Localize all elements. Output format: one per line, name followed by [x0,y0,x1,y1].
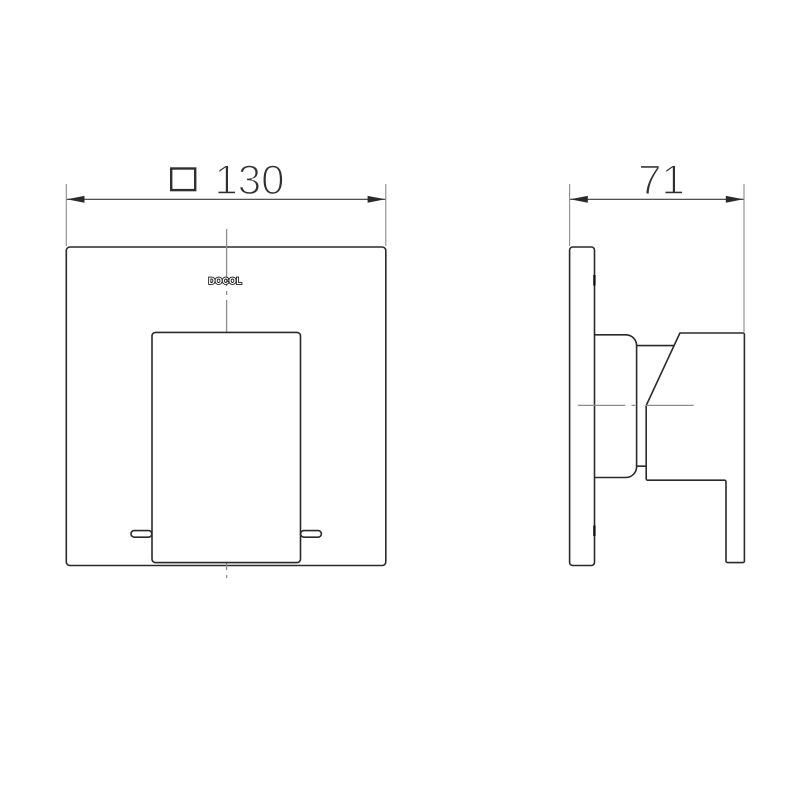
svg-text:71: 71 [638,156,685,203]
svg-text:DOCOL: DOCOL [208,276,242,286]
svg-text:130: 130 [214,156,284,203]
